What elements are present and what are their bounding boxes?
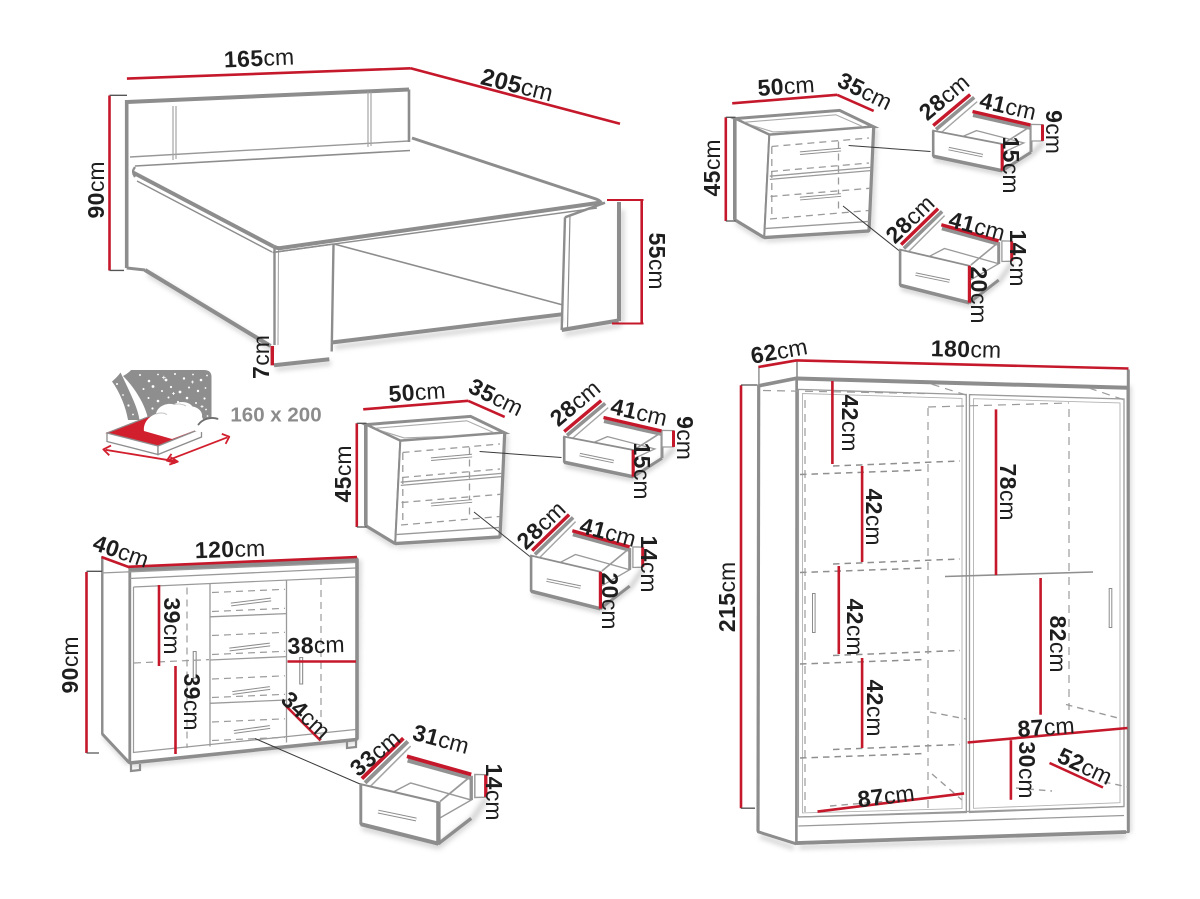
svg-text:180cm: 180cm	[931, 335, 1002, 363]
svg-text:90cm: 90cm	[83, 161, 109, 218]
svg-text:87cm: 87cm	[1017, 712, 1076, 742]
svg-text:165cm: 165cm	[223, 43, 294, 72]
svg-text:42cm: 42cm	[861, 488, 887, 545]
svg-text:90cm: 90cm	[57, 636, 83, 693]
svg-text:39cm: 39cm	[179, 673, 205, 730]
svg-text:30cm: 30cm	[1014, 741, 1040, 798]
svg-text:42cm: 42cm	[837, 394, 863, 451]
svg-text:14cm: 14cm	[481, 763, 507, 820]
svg-text:55cm: 55cm	[644, 232, 670, 289]
svg-text:42cm: 42cm	[842, 598, 868, 655]
svg-text:31cm: 31cm	[410, 719, 472, 759]
svg-text:7cm: 7cm	[248, 335, 274, 379]
svg-text:62cm: 62cm	[749, 333, 810, 369]
svg-text:78cm: 78cm	[995, 463, 1021, 520]
svg-text:160 x 200: 160 x 200	[230, 404, 321, 427]
svg-text:38cm: 38cm	[287, 631, 345, 659]
svg-text:42cm: 42cm	[862, 679, 888, 736]
svg-text:215cm: 215cm	[714, 562, 740, 632]
svg-text:82cm: 82cm	[1045, 615, 1071, 672]
svg-text:39cm: 39cm	[159, 597, 185, 654]
svg-text:205cm: 205cm	[478, 63, 556, 107]
svg-text:120cm: 120cm	[194, 535, 265, 563]
